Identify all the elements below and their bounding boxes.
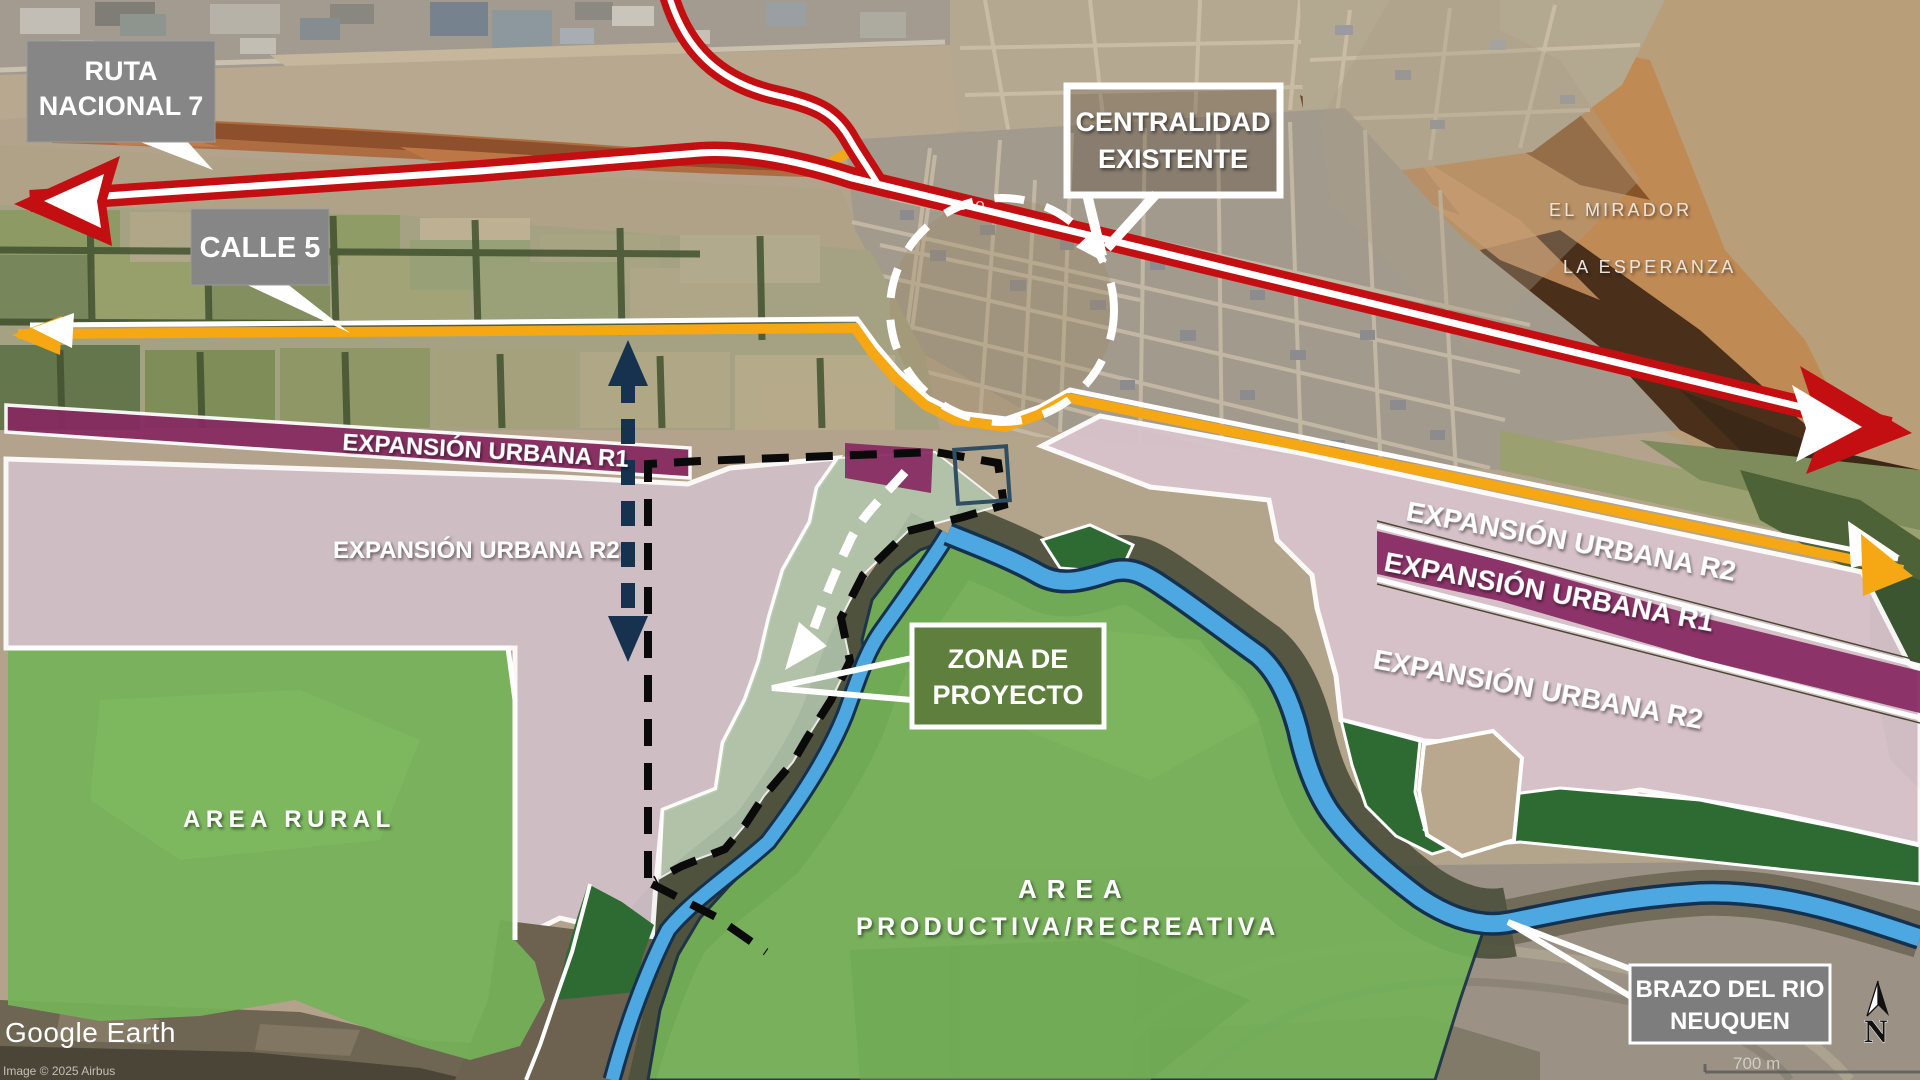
svg-text:RUTA: RUTA: [85, 56, 158, 86]
svg-text:PROYECTO: PROYECTO: [932, 680, 1083, 710]
svg-text:700 m: 700 m: [1733, 1054, 1780, 1073]
svg-text:CALLE 5: CALLE 5: [200, 232, 321, 264]
svg-text:ZONA DE: ZONA DE: [948, 644, 1069, 674]
svg-text:LA ESPERANZA: LA ESPERANZA: [1563, 257, 1736, 277]
svg-text:EXISTENTE: EXISTENTE: [1098, 144, 1248, 174]
svg-text:N: N: [1864, 1014, 1888, 1050]
svg-text:Google Earth: Google Earth: [5, 1017, 176, 1048]
svg-text:BRAZO DEL RIO: BRAZO DEL RIO: [1636, 976, 1825, 1003]
svg-text:CENTRALIDAD: CENTRALIDAD: [1076, 107, 1271, 137]
svg-text:EL MIRADOR: EL MIRADOR: [1549, 200, 1692, 220]
svg-text:Image © 2025 Airbus: Image © 2025 Airbus: [3, 1064, 115, 1078]
svg-text:NEUQUEN: NEUQUEN: [1670, 1008, 1790, 1035]
svg-text:EXPANSIÓN URBANA R2: EXPANSIÓN URBANA R2: [333, 536, 620, 564]
svg-text:olo: olo: [958, 195, 987, 214]
svg-text:AREA RURAL: AREA RURAL: [183, 806, 396, 833]
svg-text:PRODUCTIVA/RECREATIVA: PRODUCTIVA/RECREATIVA: [856, 913, 1280, 941]
svg-text:AREA: AREA: [1018, 874, 1132, 904]
svg-text:NACIONAL 7: NACIONAL 7: [39, 91, 204, 121]
